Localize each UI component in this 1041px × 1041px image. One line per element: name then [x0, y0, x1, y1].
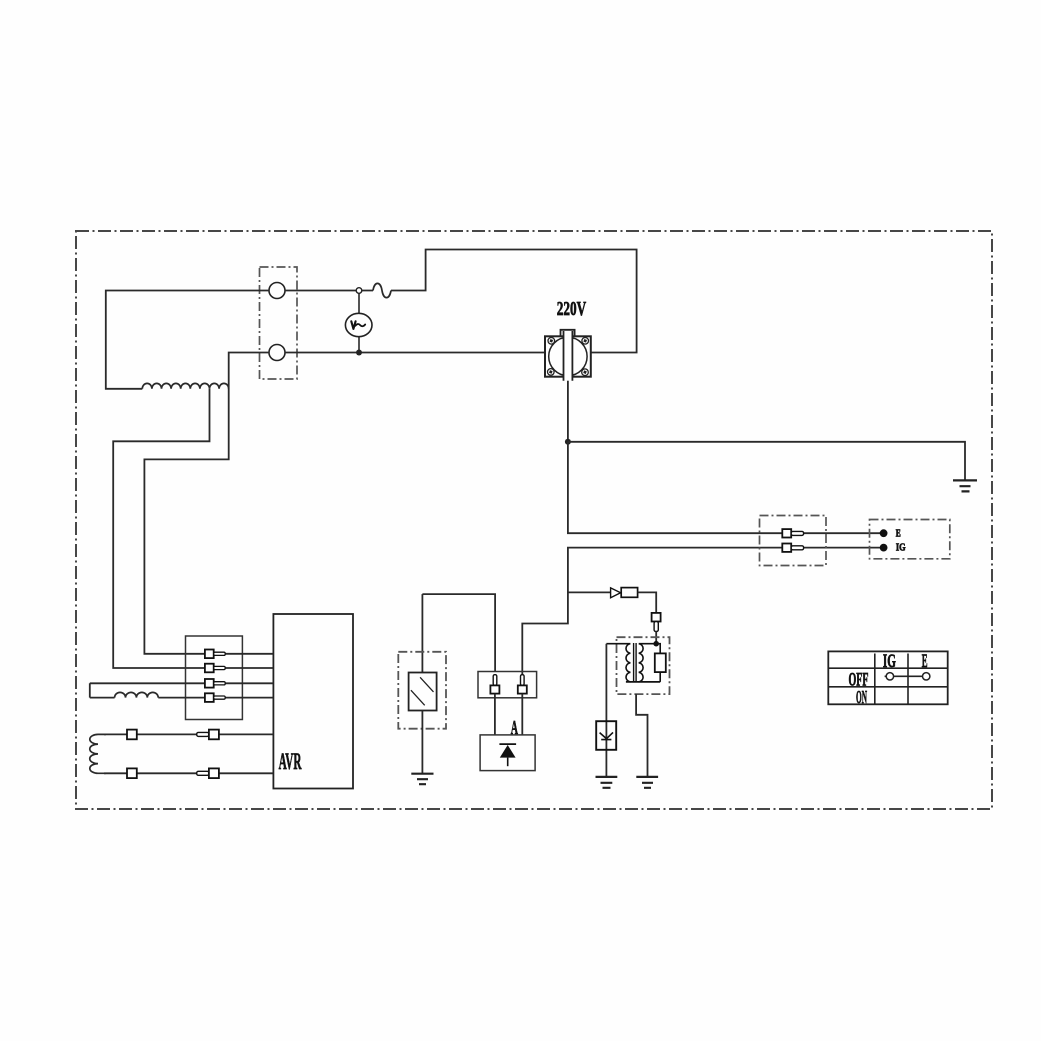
- svg-text:E: E: [896, 529, 901, 540]
- svg-text:ON: ON: [856, 687, 867, 707]
- svg-text:IG: IG: [896, 543, 906, 554]
- svg-text:E: E: [922, 652, 928, 672]
- svg-text:IG: IG: [883, 652, 896, 672]
- svg-text:AVR: AVR: [279, 749, 302, 774]
- svg-text:220V: 220V: [557, 298, 587, 320]
